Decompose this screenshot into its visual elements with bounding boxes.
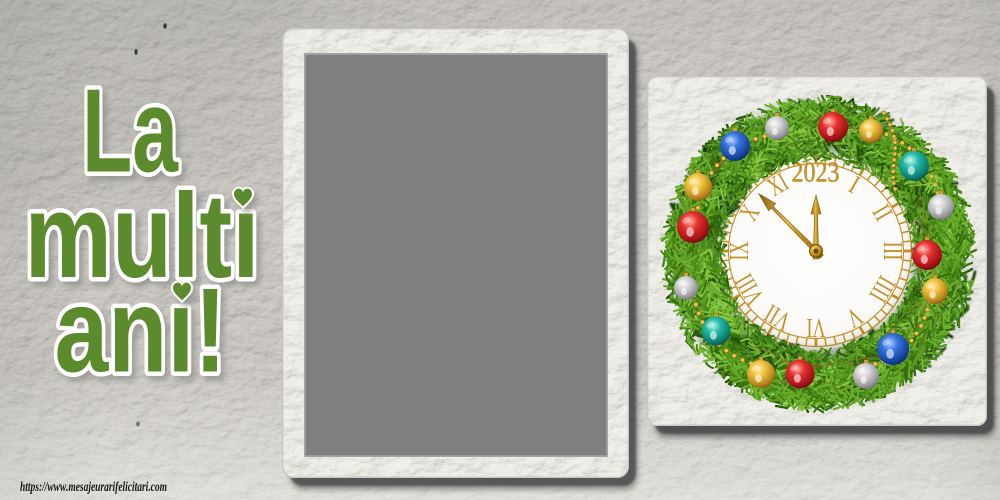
svg-text:IX: IX (724, 241, 754, 260)
svg-text:III: III (878, 242, 908, 261)
svg-text:VI: VI (807, 313, 826, 343)
svg-text:https://www.mesajeurarifelicit: https://www.mesajeurarifelicitari.com (20, 480, 167, 495)
svg-text:anı!: anı! (55, 264, 227, 398)
